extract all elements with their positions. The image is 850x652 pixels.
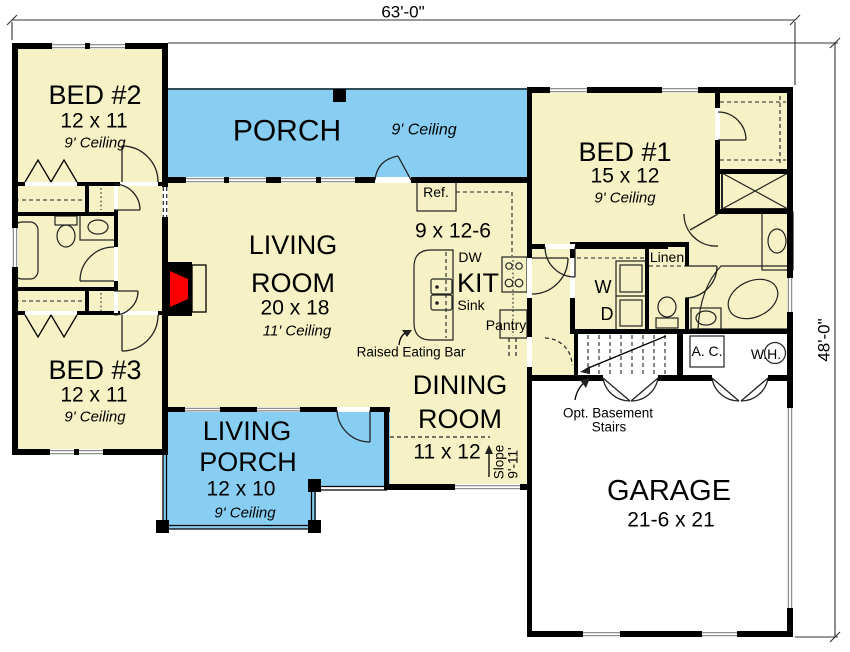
dining-name-1: DINING: [413, 370, 508, 400]
bed1-name: BED #1: [578, 137, 671, 167]
garage-size: 21-6 x 21: [627, 509, 715, 532]
garage-name: GARAGE: [607, 475, 731, 507]
bed3-name: BED #3: [48, 355, 141, 385]
porch-post-icon: [156, 520, 169, 533]
kitchen-size: 9 x 12-6: [415, 220, 491, 243]
window-mullion: [85, 43, 90, 49]
slope-label-2: 9'-11': [506, 447, 521, 478]
pantry-label: Pantry: [486, 317, 526, 333]
living-porch-name-1: LIVING: [203, 416, 292, 446]
refrigerator-label: Ref.: [423, 184, 449, 200]
dining-size: 11 x 12: [413, 441, 480, 464]
sink-label: Sink: [457, 297, 485, 313]
dryer-label: D: [601, 304, 614, 324]
sink-drain-icon: [435, 285, 439, 289]
living-ceiling: 11' Ceiling: [263, 323, 332, 340]
window-mullion: [316, 177, 321, 183]
bed2-name: BED #2: [48, 80, 141, 110]
bed1-ceiling: 9' Ceiling: [594, 190, 656, 207]
window-mullion: [224, 177, 229, 183]
dining-name-2: ROOM: [418, 404, 502, 434]
front-porch-floor: [168, 88, 528, 177]
porch-name: PORCH: [233, 115, 341, 148]
washer-label: W: [595, 277, 612, 297]
kitchen-name: KIT: [457, 268, 499, 298]
bed3-size: 12 x 11: [60, 384, 127, 407]
slope-label-1: Slope: [492, 445, 507, 480]
sink-drain-icon: [435, 301, 439, 305]
bed1-size: 15 x 12: [591, 165, 660, 188]
floor-plan: 63'-0" 48'-0" BED #2 12 x 11 9' Ceiling …: [0, 0, 850, 652]
bed2-ceiling: 9' Ceiling: [64, 135, 126, 152]
bed3-ceiling: 9' Ceiling: [64, 409, 126, 426]
porch-post-icon: [333, 89, 346, 102]
porch-ceiling: 9' Ceiling: [391, 122, 456, 139]
wh-label: W.H.: [751, 346, 781, 362]
window-mullion: [74, 449, 79, 455]
floor-plan-drawing: 63'-0" 48'-0" BED #2 12 x 11 9' Ceiling …: [0, 0, 850, 652]
living-porch-name-2: PORCH: [199, 447, 297, 477]
living-porch-ceiling: 9' Ceiling: [214, 505, 276, 522]
eating-bar-label: Raised Eating Bar: [357, 345, 466, 360]
living-size: 20 x 18: [261, 297, 330, 320]
depth-dimension: 48'-0": [815, 318, 834, 361]
living-name-2: ROOM: [251, 268, 335, 298]
ac-label: A. C.: [691, 343, 722, 359]
porch-post-icon: [308, 479, 321, 492]
dishwasher-label: DW: [458, 249, 482, 265]
linen-label: Linen: [650, 249, 684, 265]
landing-floor: [528, 334, 577, 378]
porch-post-icon: [308, 520, 321, 533]
living-porch-size: 12 x 10: [207, 478, 276, 501]
width-dimension: 63'-0": [381, 3, 424, 22]
living-name-1: LIVING: [249, 230, 338, 260]
opt-basement-label-1: Opt. Basement: [563, 406, 653, 421]
bed2-size: 12 x 11: [60, 110, 127, 133]
opt-basement-label-2: Stairs: [592, 420, 627, 435]
